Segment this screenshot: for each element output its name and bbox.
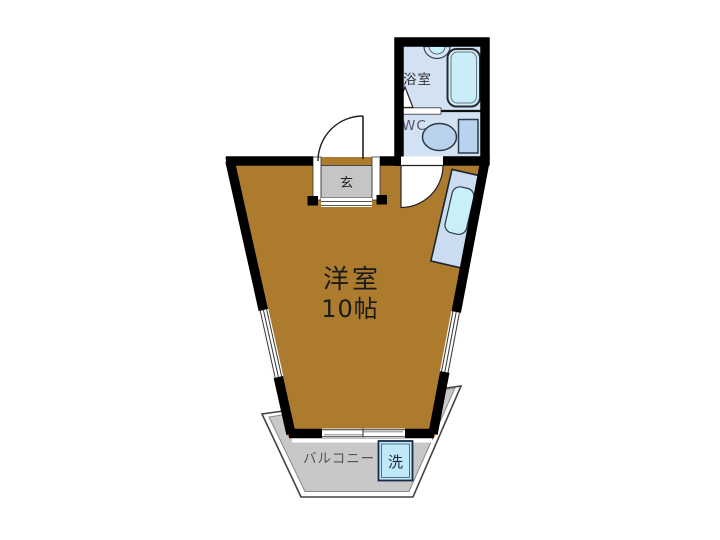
bathtub-icon [448,49,481,107]
balcony-label: バルコニー [303,451,375,467]
genkan-wall-stub-right [377,195,388,205]
entrance-door-arc [318,116,363,161]
genkan-label: 玄 [340,176,353,191]
floor-plan-canvas: バルコニー 洗 玄 洋室 10帖 [0,0,720,540]
bath-sliding-door [403,108,441,114]
toilet-bowl-icon [423,124,457,151]
wc-door-opening [401,157,443,167]
washing-machine-label: 洗 [388,453,403,471]
wc-label: WC [402,118,427,134]
washing-machine-icon: 洗 [379,441,413,481]
genkan-wall-stub-left [308,196,319,206]
entrance-frame-right [372,157,380,200]
floor-plan: バルコニー 洗 玄 洋室 10帖 [0,0,720,540]
bath-wc-block: 浴室 WC [397,46,481,161]
toilet-tank-icon [459,120,479,154]
room-name-label: 洋室 [323,265,381,295]
room-size-label: 10帖 [321,295,379,323]
bathroom-label: 浴室 [403,71,432,88]
entrance-door-icon [318,116,363,161]
entrance-frame-left [313,157,321,200]
